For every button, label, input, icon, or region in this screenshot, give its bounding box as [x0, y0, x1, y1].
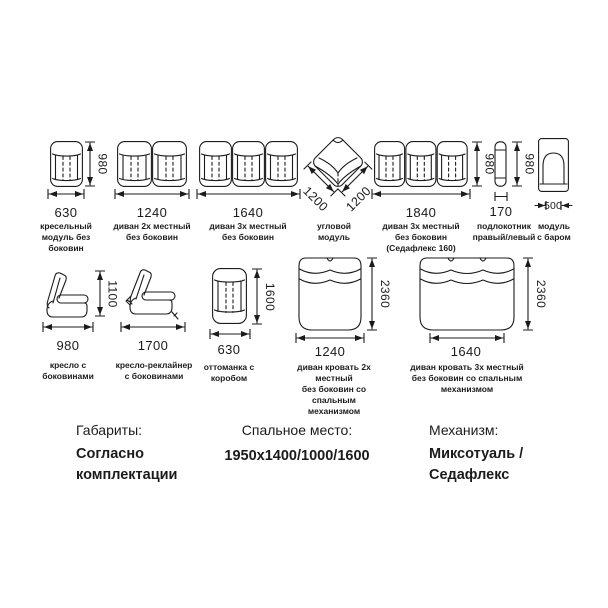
- bar-module-icon: [538, 138, 569, 192]
- width-dim-label: 1240: [122, 205, 182, 220]
- width-arrow: [47, 189, 85, 199]
- height-dim-label: 2360: [532, 257, 550, 331]
- width-dim-label: 1640: [218, 205, 278, 220]
- width-dim-label: 980: [40, 338, 96, 353]
- width-tick-marker: [494, 192, 508, 201]
- armchair-side-icon: [45, 270, 95, 318]
- width-arrow: [114, 189, 190, 199]
- mechanism-value: Миксотуаль / Седафлекс: [429, 444, 549, 486]
- sleeping-place-value: 1950х1400/1000/1600: [212, 446, 382, 467]
- module-name: кресельный модуль без боковин: [31, 221, 101, 254]
- height-dim-label: 1100: [104, 270, 122, 317]
- width-dim-label: 500: [543, 200, 563, 212]
- height-dim-label: 980: [94, 141, 112, 187]
- module-name: диван 3х местный без боковин: [200, 221, 296, 243]
- width-arrow: [371, 189, 471, 199]
- width-arrow: [295, 333, 365, 343]
- module-name: угловой модуль: [305, 221, 363, 243]
- module-name: кресло с боковинами: [34, 360, 102, 382]
- corner-dim-left: 1200: [296, 184, 336, 214]
- width-arrow: [429, 333, 505, 343]
- module-name: модуль с баром: [526, 221, 582, 243]
- mechanism-label: Механизм:: [429, 422, 498, 438]
- width-dim-label: 630: [199, 342, 259, 357]
- dimensions-value: Согласно комплектации: [76, 444, 206, 486]
- height-dim-label: 2360: [376, 257, 394, 331]
- sofa-3seat-sedaflex-icon: [374, 141, 468, 187]
- module-name: диван кровать 3х местный без боковин со …: [408, 362, 526, 395]
- width-dim-label: 630: [36, 205, 96, 220]
- armchair-module-icon: [50, 141, 83, 187]
- sofa-bed-2seat-icon: [298, 257, 362, 331]
- sofa-3seat-icon: [199, 141, 298, 187]
- width-arrow: [196, 189, 301, 199]
- width-dim-label: 1640: [436, 344, 496, 359]
- width-arrow: [42, 322, 94, 332]
- armrest-icon: [494, 141, 507, 187]
- width-dim-label: 170: [478, 204, 524, 219]
- module-name: диван 2х местный без боковин: [107, 221, 197, 243]
- sofa-bed-3seat-icon: [419, 257, 515, 331]
- recliner-side-icon: [124, 266, 184, 322]
- width-dim-label: 1700: [123, 338, 183, 353]
- ottoman-icon: [212, 268, 247, 324]
- module-name: диван 3х местный без боковин (Седафлекс …: [372, 221, 470, 254]
- module-name: диван кровать 2х местный без боковин со …: [282, 362, 386, 417]
- furniture-spec-sheet: 980 630 кресельный модуль без боковин 12…: [0, 0, 608, 608]
- width-arrow: [120, 322, 186, 332]
- dimensions-label: Габариты:: [76, 422, 142, 438]
- width-arrow: [209, 329, 251, 339]
- module-name: кресло-реклайнер с боковинами: [111, 360, 197, 382]
- width-dim-label: 1240: [300, 344, 360, 359]
- height-dim-label: 1600: [261, 268, 279, 325]
- sofa-2seat-icon: [117, 141, 187, 187]
- module-name: оттоманка с коробом: [195, 362, 263, 384]
- sleeping-place-label: Спальное место:: [222, 422, 372, 438]
- height-dim-label: 980: [521, 141, 539, 187]
- width-dim-label: 1840: [391, 205, 451, 220]
